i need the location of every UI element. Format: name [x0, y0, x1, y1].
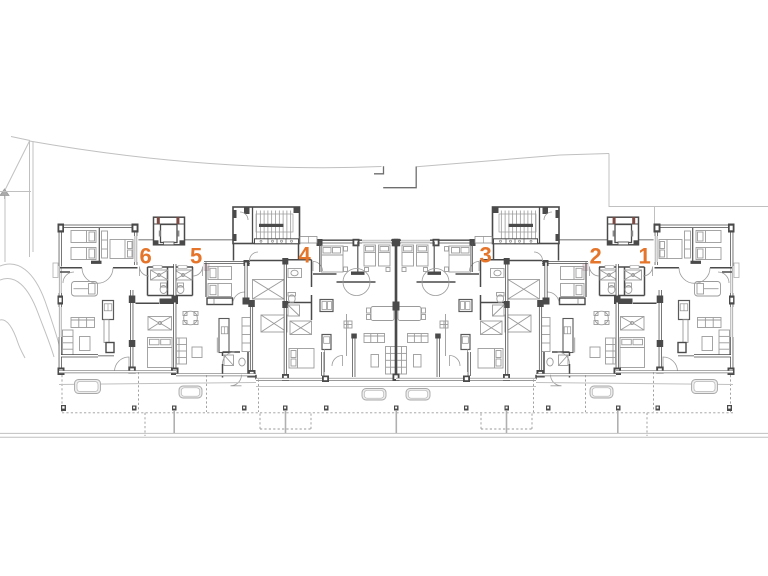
- svg-text:2: 2: [590, 244, 602, 269]
- svg-text:6: 6: [140, 244, 152, 269]
- svg-text:5: 5: [190, 244, 202, 269]
- svg-text:4: 4: [299, 243, 312, 268]
- svg-text:3: 3: [480, 243, 492, 268]
- svg-text:1: 1: [639, 244, 651, 269]
